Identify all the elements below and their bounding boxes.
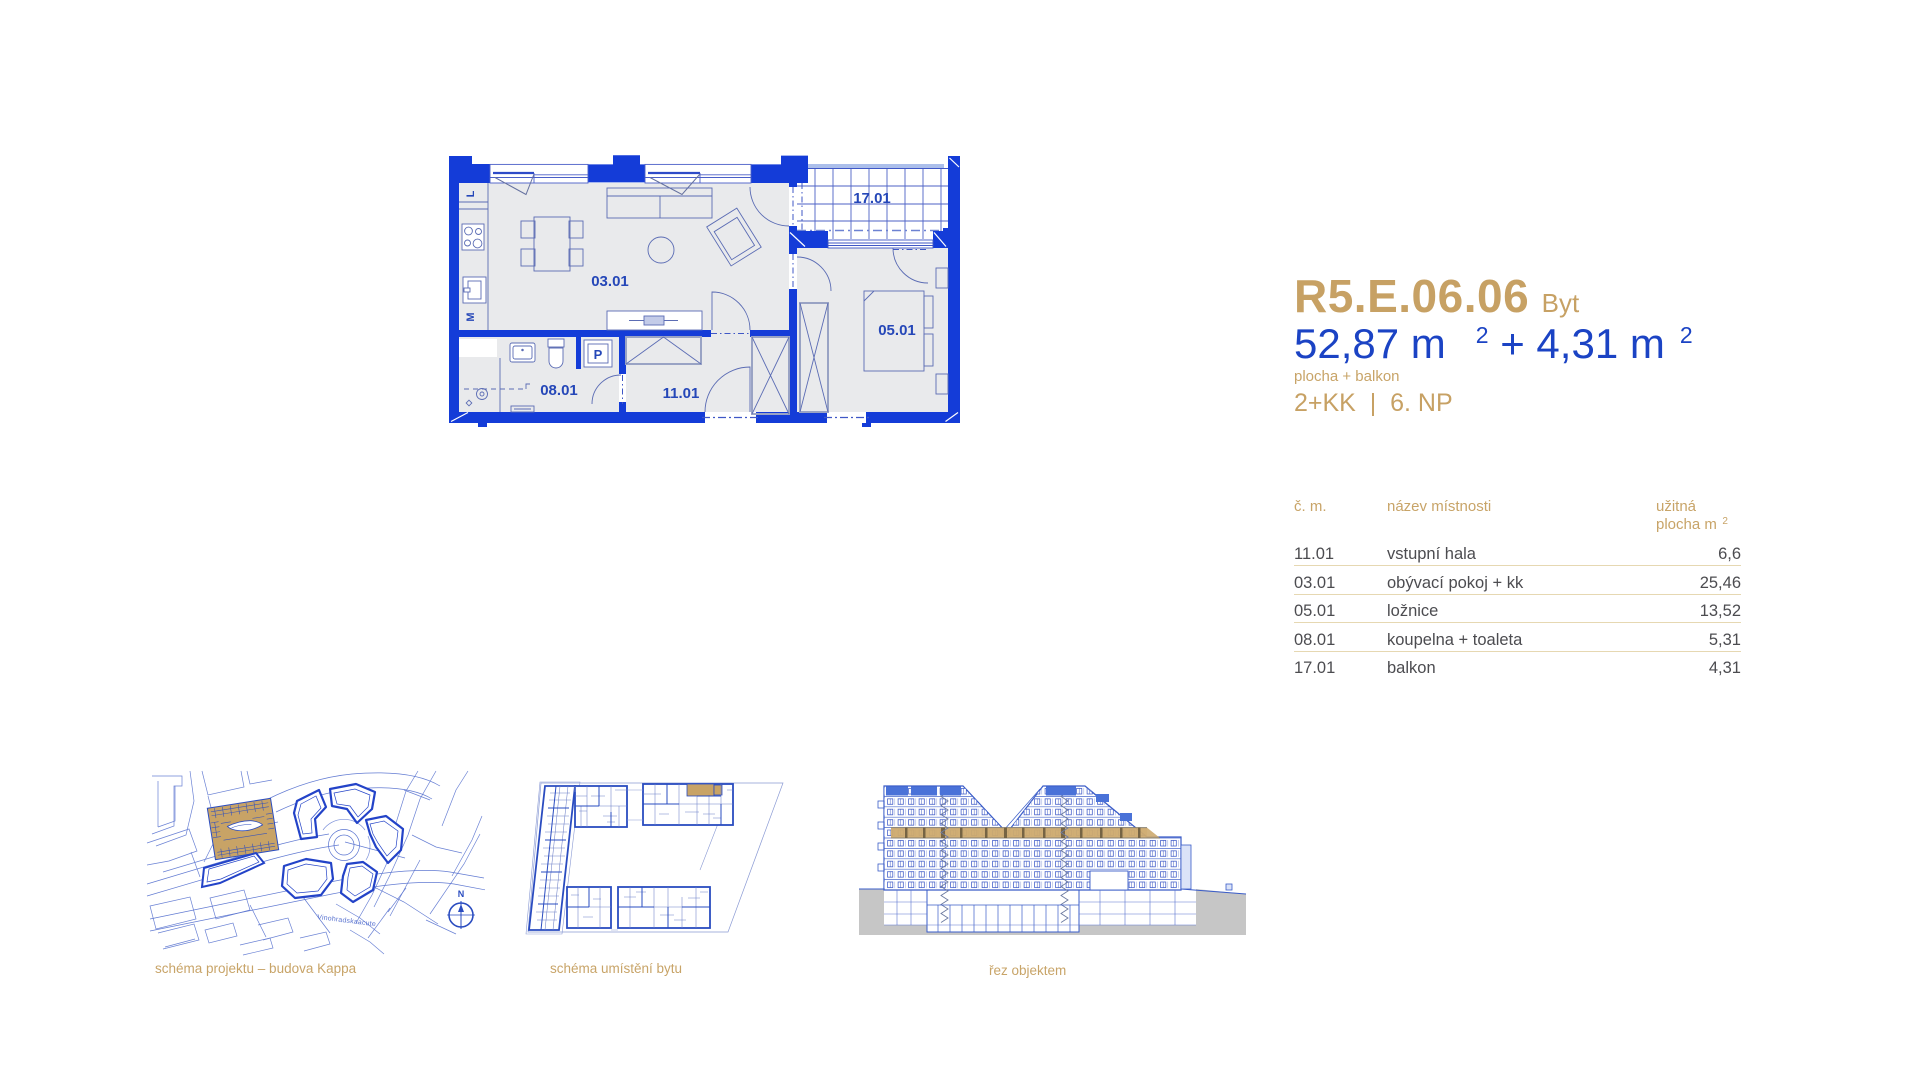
svg-text:17.01: 17.01 xyxy=(853,190,891,207)
svg-text:N: N xyxy=(458,889,465,899)
svg-text:03.01: 03.01 xyxy=(591,273,629,290)
svg-text:Vinohradskaacute: Vinohradskaacute xyxy=(317,914,377,928)
svg-text:M: M xyxy=(465,312,477,321)
svg-text:P: P xyxy=(594,347,603,362)
svg-text:11.01: 11.01 xyxy=(663,385,700,402)
svg-text:L: L xyxy=(465,190,477,197)
svg-text:08.01: 08.01 xyxy=(540,382,578,399)
svg-text:05.01: 05.01 xyxy=(878,322,916,339)
